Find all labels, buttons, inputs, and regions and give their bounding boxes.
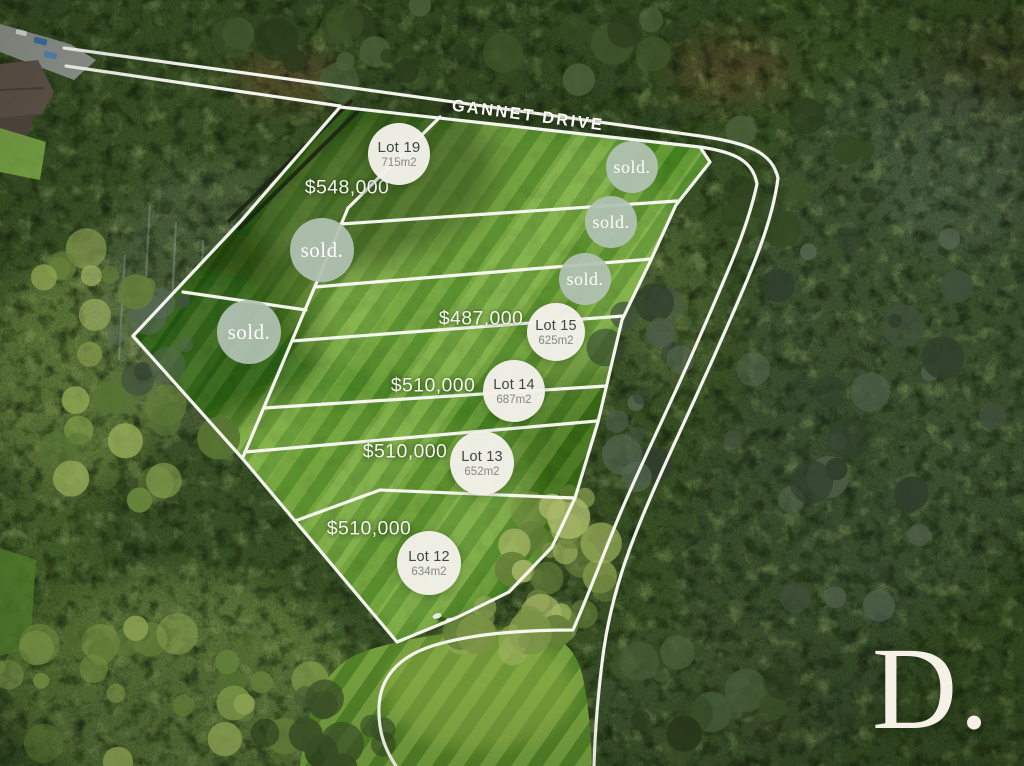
lot-19-label: Lot 19: [378, 139, 421, 156]
lot-13-area: 652m2: [464, 466, 499, 478]
lot-14-area: 687m2: [496, 394, 531, 406]
lot-12-area: 634m2: [411, 566, 446, 578]
lot-13-label: Lot 13: [461, 449, 503, 465]
lot-marker-14: Lot 14 687m2: [483, 360, 545, 422]
lot-15-label: Lot 15: [535, 318, 577, 334]
lot-12-label: Lot 12: [408, 549, 450, 565]
sold-badge-2: sold.: [585, 196, 637, 248]
lot-marker-12: Lot 12 634m2: [397, 531, 461, 595]
brand-logo: D.: [872, 630, 991, 748]
lot-15-area: 625m2: [538, 335, 573, 347]
lot-marker-15: Lot 15 625m2: [527, 303, 585, 361]
lot-19-area: 715m2: [381, 157, 416, 169]
sold-badge-1: sold.: [606, 141, 658, 193]
sold-badge-3: sold.: [559, 253, 611, 305]
lot-marker-19: Lot 19 715m2: [368, 123, 430, 185]
lot-marker-13: Lot 13 652m2: [450, 431, 514, 495]
sold-badge-5: sold.: [217, 300, 281, 364]
price-lot-13: $510,000: [363, 441, 448, 464]
sold-badge-4: sold.: [290, 218, 354, 282]
lot-14-label: Lot 14: [493, 377, 535, 393]
price-lot-19: $548,000: [305, 177, 390, 200]
price-lot-15: $487,000: [439, 308, 524, 331]
aerial-lot-map: GANNET DRIVE $548,000 $487,000 $510,000 …: [0, 0, 1024, 766]
price-lot-14: $510,000: [391, 375, 476, 398]
price-lot-12: $510,000: [327, 518, 412, 541]
